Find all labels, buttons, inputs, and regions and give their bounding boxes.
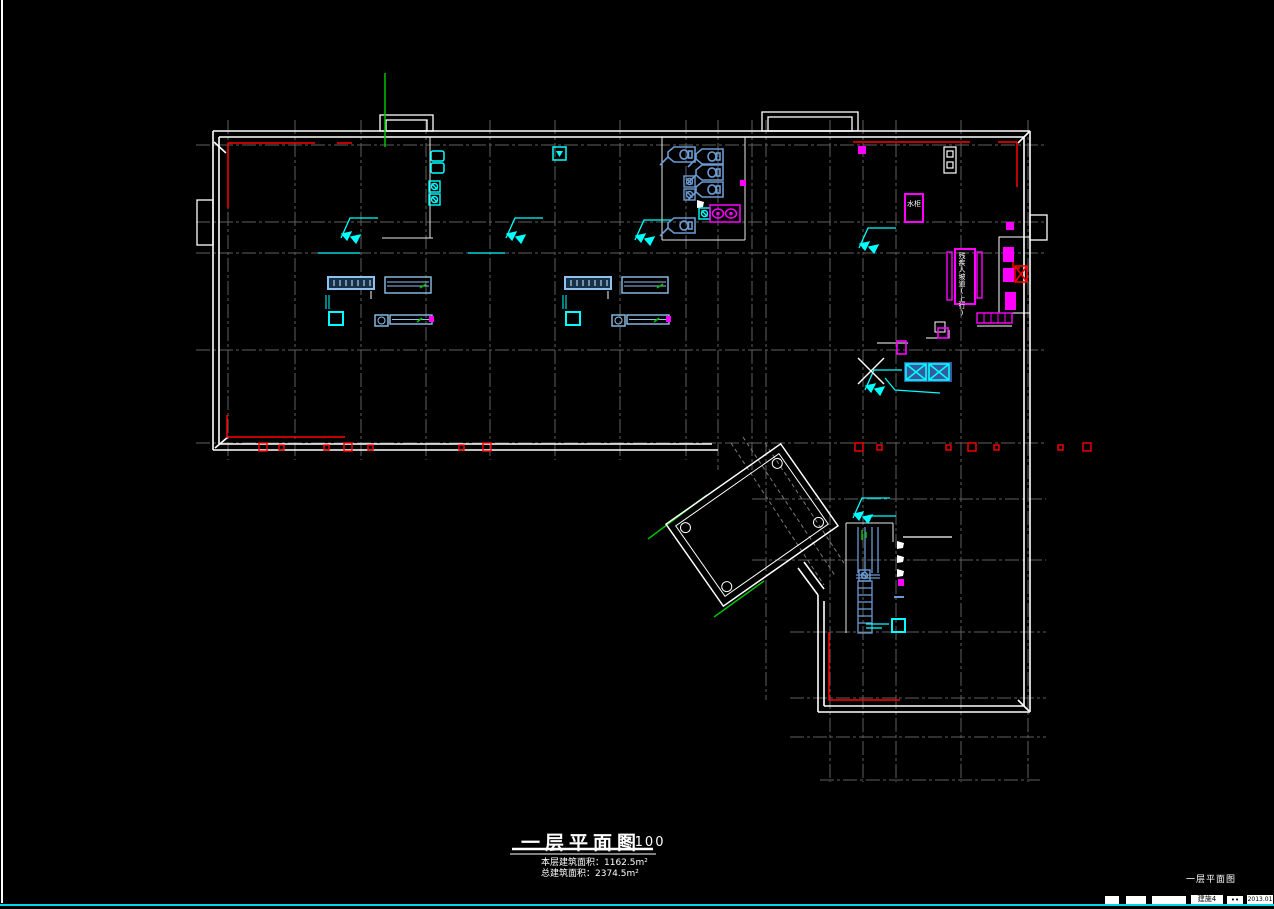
outer-walls	[213, 131, 1030, 712]
corner-note: 一层平面图	[1186, 872, 1236, 885]
staircase	[856, 527, 880, 633]
floor-plan-drawing	[0, 0, 1274, 909]
equipment-units	[877, 328, 952, 382]
titleblock-cell	[1152, 896, 1186, 904]
titleblock-cell	[1126, 896, 1146, 904]
cabinet-box	[858, 146, 923, 222]
area-line-2: 总建筑面积：2374.5m²	[541, 866, 639, 879]
statusbar-divider	[0, 904, 1274, 906]
furniture-cluster-1	[326, 277, 434, 326]
lower-wing-fixtures	[866, 537, 952, 632]
furniture-cluster-2	[563, 277, 671, 326]
ramp-label: 残疾人坡道(上行)	[958, 252, 965, 302]
interior-partitions	[382, 137, 893, 633]
titleblock-sheet: 建施4	[1191, 895, 1223, 904]
service-counter-fixture	[944, 147, 956, 173]
titleblock-date: 2013.01	[1247, 895, 1273, 904]
grid-lines	[196, 120, 1046, 782]
wash-basins	[710, 205, 740, 222]
titleblock-cell: ••	[1227, 896, 1243, 904]
entrance-chamfer-wall	[731, 437, 846, 585]
wall-fixtures-top	[429, 147, 566, 205]
plan-scale: 1:100	[618, 835, 665, 850]
wall-pilasters	[197, 112, 1047, 245]
titleblock-cell	[1105, 896, 1119, 904]
green-axis-lines	[385, 73, 764, 617]
cad-viewport[interactable]: 一层平面图 1:100 本层建筑面积：1162.5m² 总建筑面积：2374.5…	[0, 0, 1274, 909]
elevator-cross	[858, 358, 884, 384]
door-swings	[318, 218, 940, 523]
sheet-left-edge	[1, 0, 3, 903]
cabinet-label: 水柜	[907, 200, 921, 208]
